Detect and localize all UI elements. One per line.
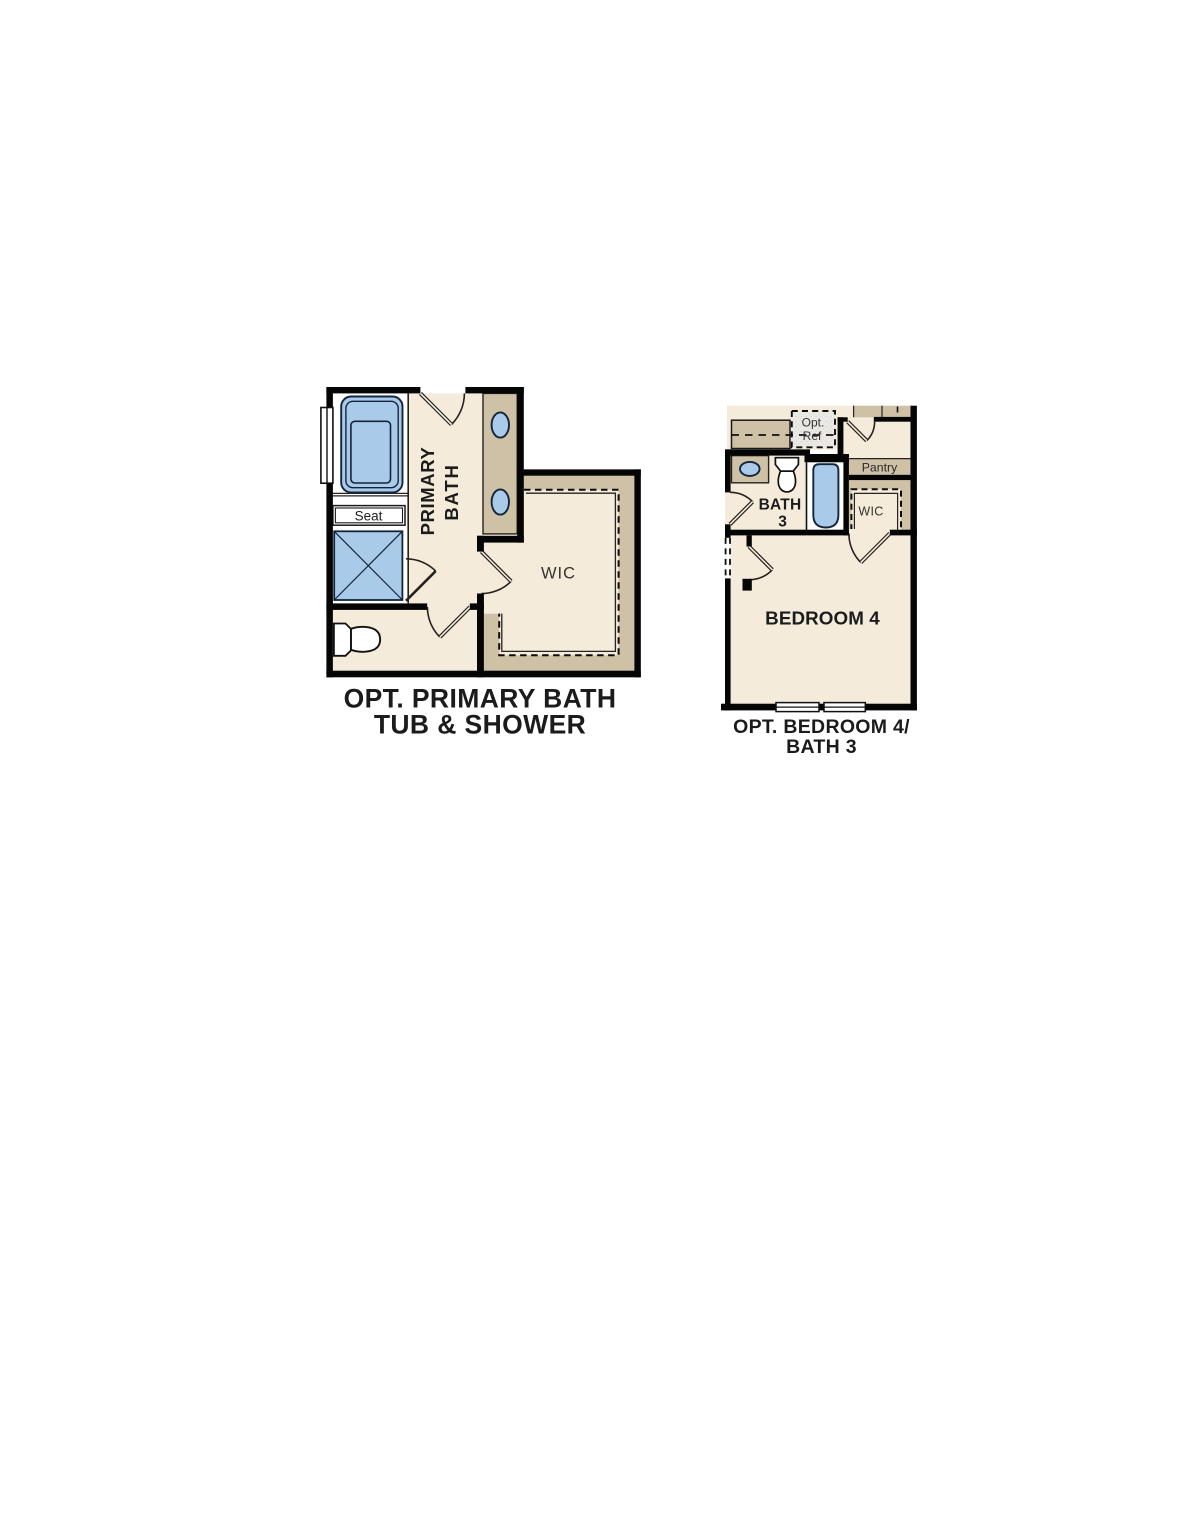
- svg-text:OPT. BEDROOM 4/: OPT. BEDROOM 4/: [733, 716, 910, 738]
- svg-text:3: 3: [778, 514, 787, 531]
- svg-text:PRIMARY: PRIMARY: [417, 447, 438, 536]
- svg-text:Seat: Seat: [355, 509, 383, 524]
- svg-text:Ref: Ref: [803, 429, 822, 443]
- svg-text:BATH: BATH: [441, 463, 462, 520]
- svg-text:BATH 3: BATH 3: [786, 736, 857, 758]
- svg-text:Pantry: Pantry: [862, 461, 898, 475]
- svg-text:WIC: WIC: [858, 505, 883, 519]
- svg-text:Opt.: Opt.: [802, 416, 825, 430]
- svg-text:WIC: WIC: [541, 565, 576, 583]
- svg-text:TUB & SHOWER: TUB & SHOWER: [374, 710, 586, 740]
- svg-text:BATH: BATH: [759, 497, 802, 514]
- svg-text:BEDROOM 4: BEDROOM 4: [765, 608, 880, 629]
